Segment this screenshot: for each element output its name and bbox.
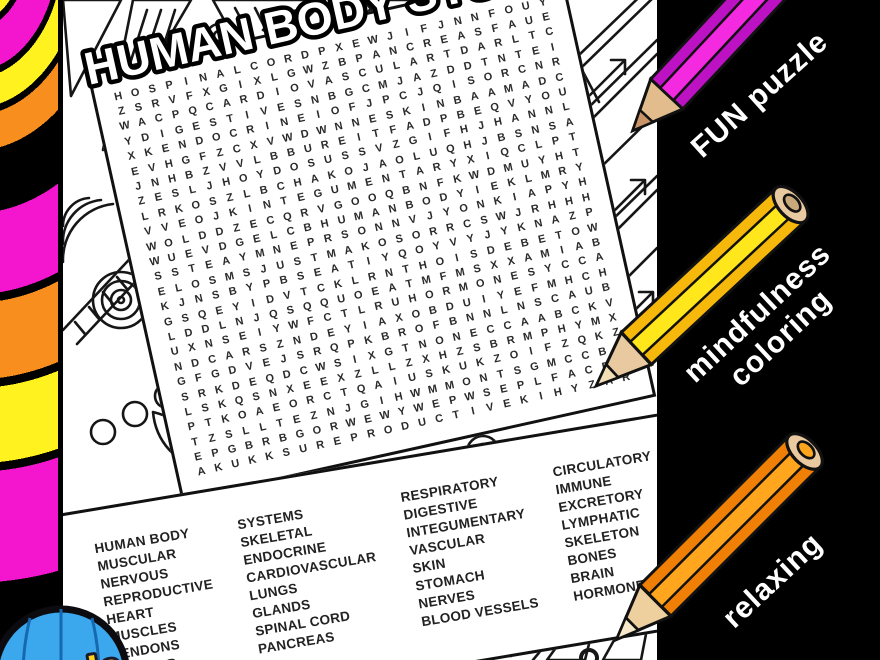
- brand-logo: puzzle: [0, 600, 136, 660]
- word-column: RESPIRATORYDIGESTIVEINTEGUMENTARYVASCULA…: [399, 470, 546, 658]
- word-column: SYSTEMSSKELETALENDOCRINECARDIOVASCULARLU…: [236, 496, 394, 660]
- promo-poster: HOSPINALCORDPXEWJIFJNNFOUYZSRVFXGIXLGWZB…: [0, 0, 880, 660]
- coloring-page: HOSPINALCORDPXEWJIFJNNFOUYZSRVFXGIXLGWZB…: [58, 0, 657, 660]
